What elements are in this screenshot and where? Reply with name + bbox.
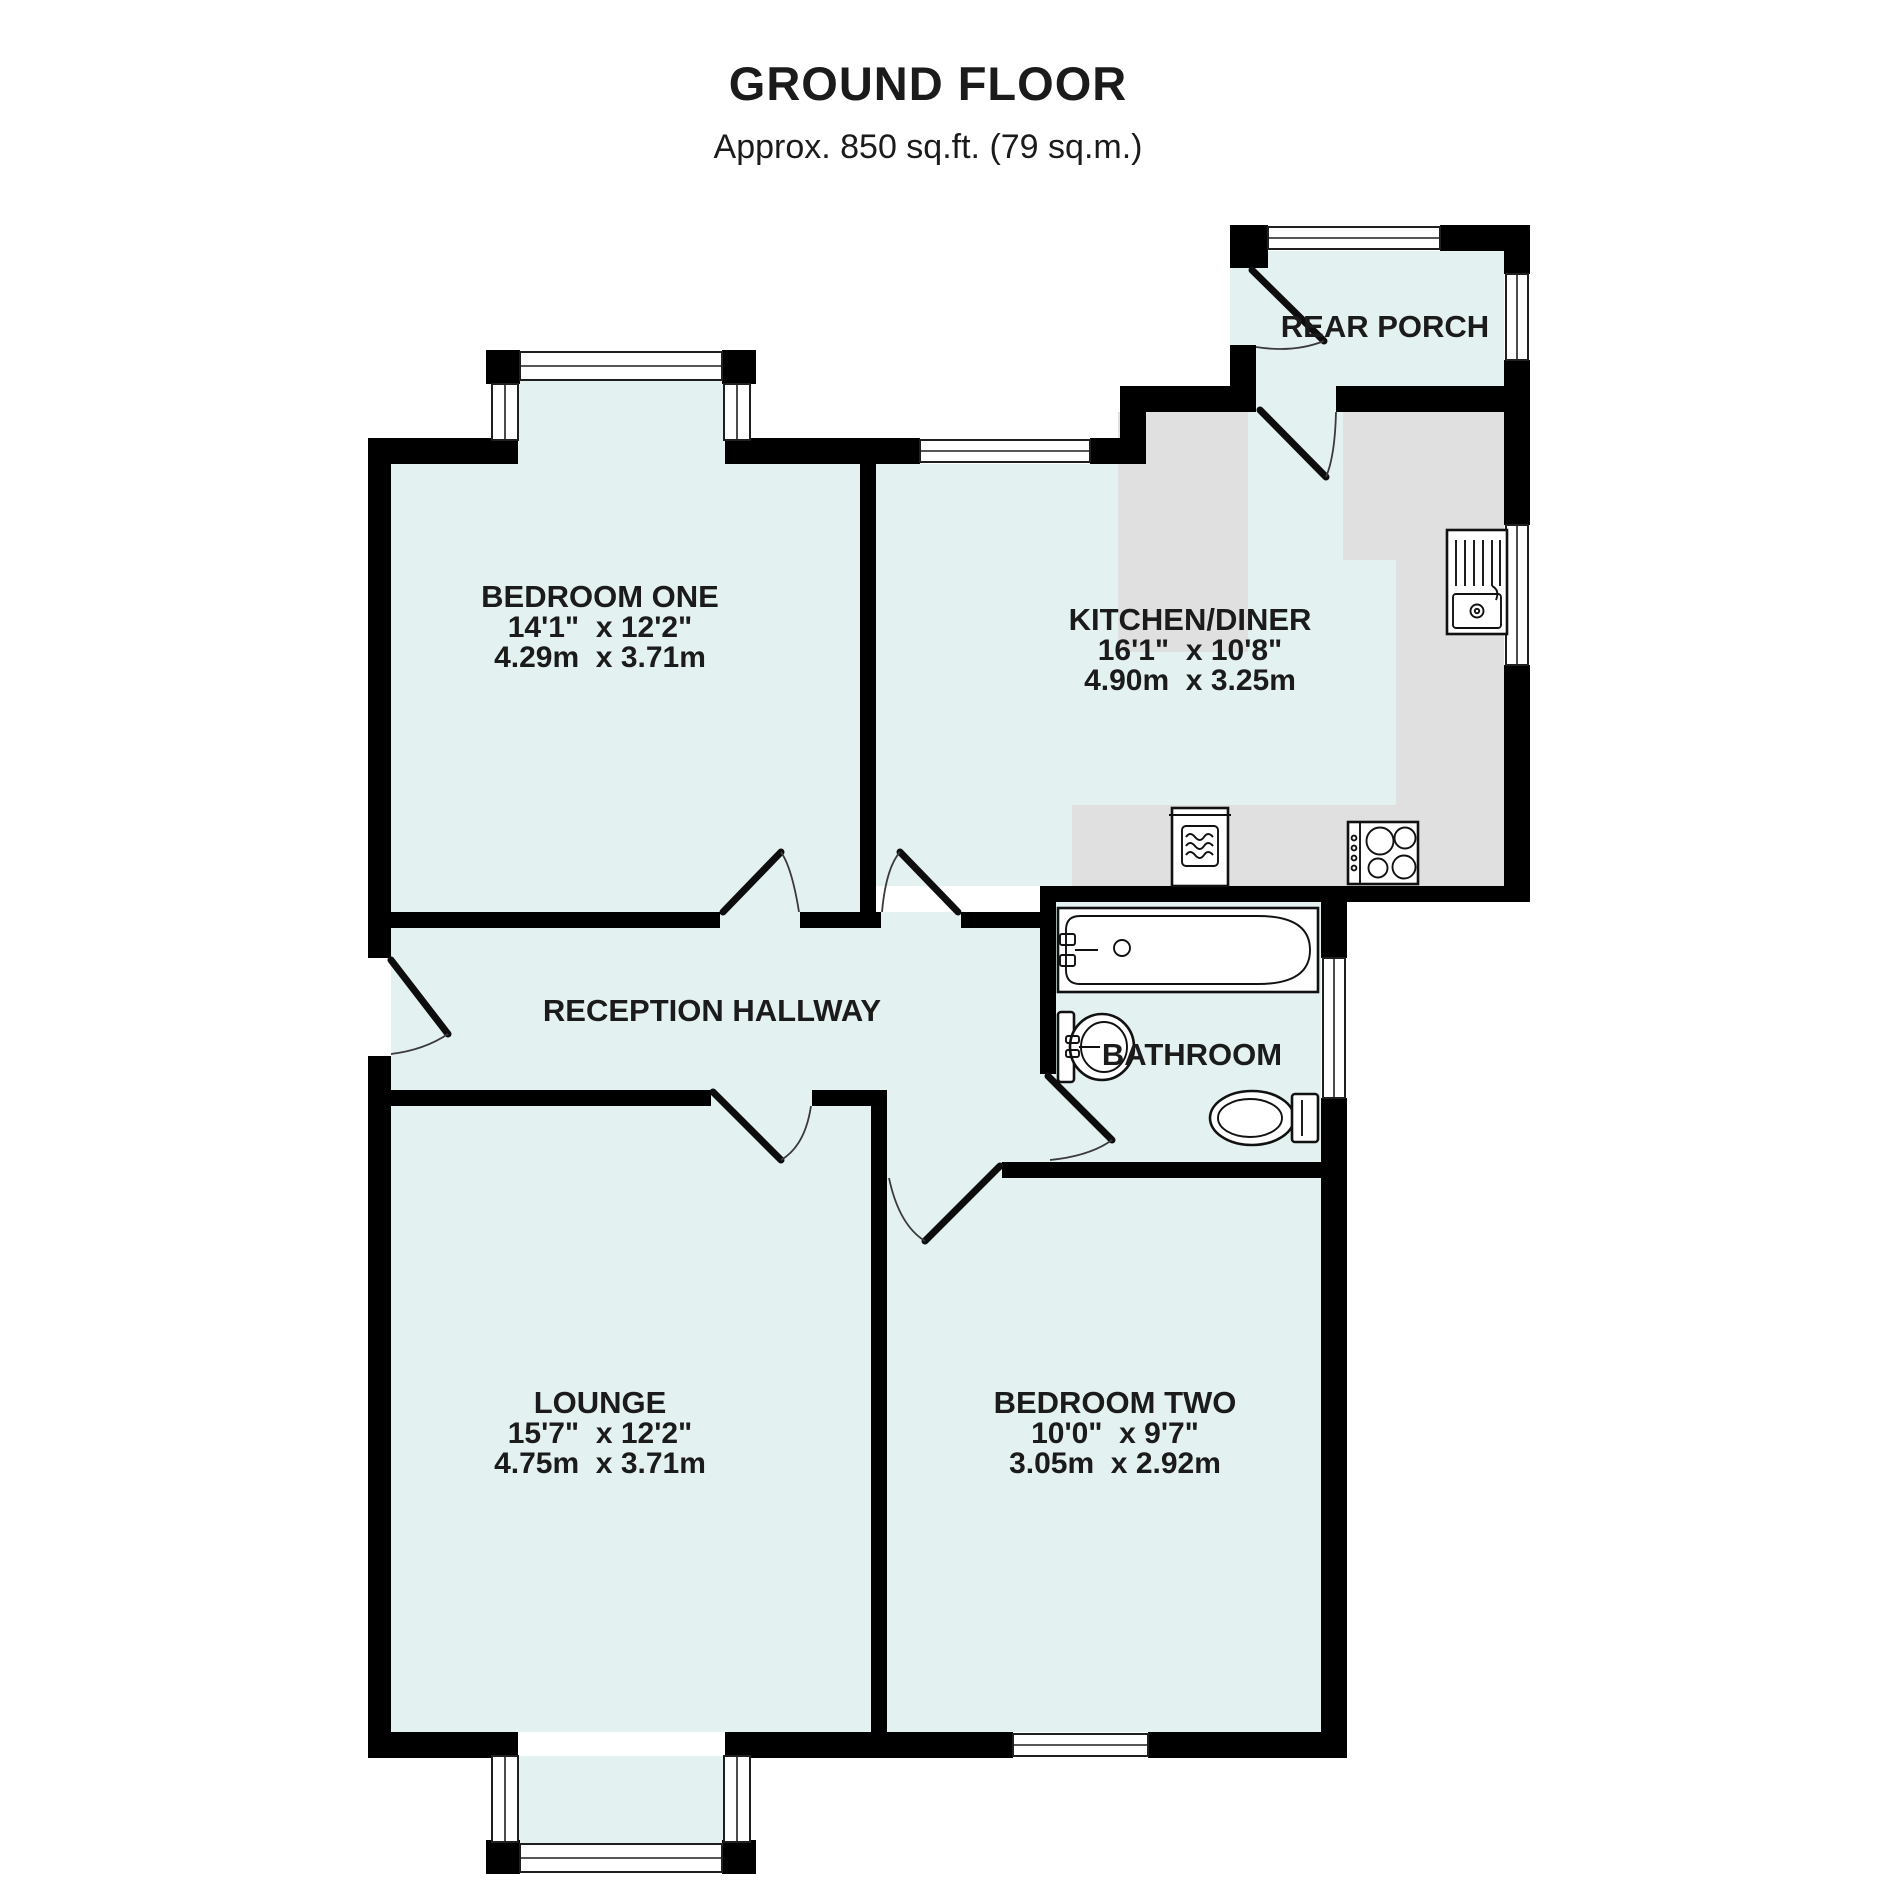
bedroom-two-label: BEDROOM TWO xyxy=(994,1385,1237,1420)
rear-porch-label: REAR PORCH xyxy=(1281,309,1489,344)
lounge-imperial: 15'7" x 12'2" xyxy=(508,1417,693,1450)
kitchen-diner-imperial: 16'1" x 10'8" xyxy=(1098,634,1283,667)
porch-kitchen-door-gap xyxy=(1256,386,1336,412)
lounge-bay-floor xyxy=(518,1756,725,1844)
kitchen-top-window-icon xyxy=(920,440,1090,462)
kitchen-diner-label: KITCHEN/DINER xyxy=(1069,602,1312,637)
floorplan-page: GROUND FLOOR Approx. 850 sq.ft. (79 sq.m… xyxy=(0,0,1900,1900)
bedroom-one-imperial: 14'1" x 12'2" xyxy=(508,611,693,644)
bedroom-two-imperial: 10'0" x 9'7" xyxy=(1031,1417,1199,1450)
bathroom-window-icon xyxy=(1323,958,1345,1098)
porch-door-gap xyxy=(1230,268,1256,345)
worktop-corner-block xyxy=(1343,412,1404,560)
kitchen-right-window-icon xyxy=(1506,525,1528,665)
bath-icon xyxy=(1058,908,1318,992)
lounge-metric: 4.75m x 3.71m xyxy=(494,1447,706,1480)
floorplan-drawing: GROUND FLOOR Approx. 850 sq.ft. (79 sq.m… xyxy=(0,0,1900,1900)
bedroom-one-metric: 4.29m x 3.71m xyxy=(494,641,706,674)
washing-machine-icon xyxy=(1169,808,1231,886)
bathroom-door-gap xyxy=(1040,1074,1056,1162)
bedroom-one-bay-floor xyxy=(518,380,725,470)
toilet-icon xyxy=(1210,1091,1318,1145)
page-subtitle: Approx. 850 sq.ft. (79 sq.m.) xyxy=(714,128,1143,166)
kitchen-sink-icon xyxy=(1447,530,1507,634)
bedroom-two-door-gap xyxy=(887,1162,1002,1178)
bedroom-two-metric: 3.05m x 2.92m xyxy=(1009,1447,1221,1480)
bedroom-two-window-icon xyxy=(1013,1734,1148,1756)
bedroom-one-label: BEDROOM ONE xyxy=(481,579,719,614)
porch-right-window-icon xyxy=(1506,274,1528,360)
reception-hallway-label: RECEPTION HALLWAY xyxy=(543,993,881,1028)
kitchen-door-gap xyxy=(881,912,961,928)
bedroom-one-door-gap xyxy=(720,912,800,928)
bathroom-label: BATHROOM xyxy=(1102,1037,1282,1072)
page-title: GROUND FLOOR xyxy=(729,57,1127,110)
porch-top-window-icon xyxy=(1268,227,1440,249)
worktop-bottom-band xyxy=(1072,805,1504,886)
lounge-label: LOUNGE xyxy=(534,1385,667,1420)
bedroom-one-floor xyxy=(391,464,860,912)
hob-icon xyxy=(1348,822,1418,884)
kitchen-diner-metric: 4.90m x 3.25m xyxy=(1084,664,1296,697)
